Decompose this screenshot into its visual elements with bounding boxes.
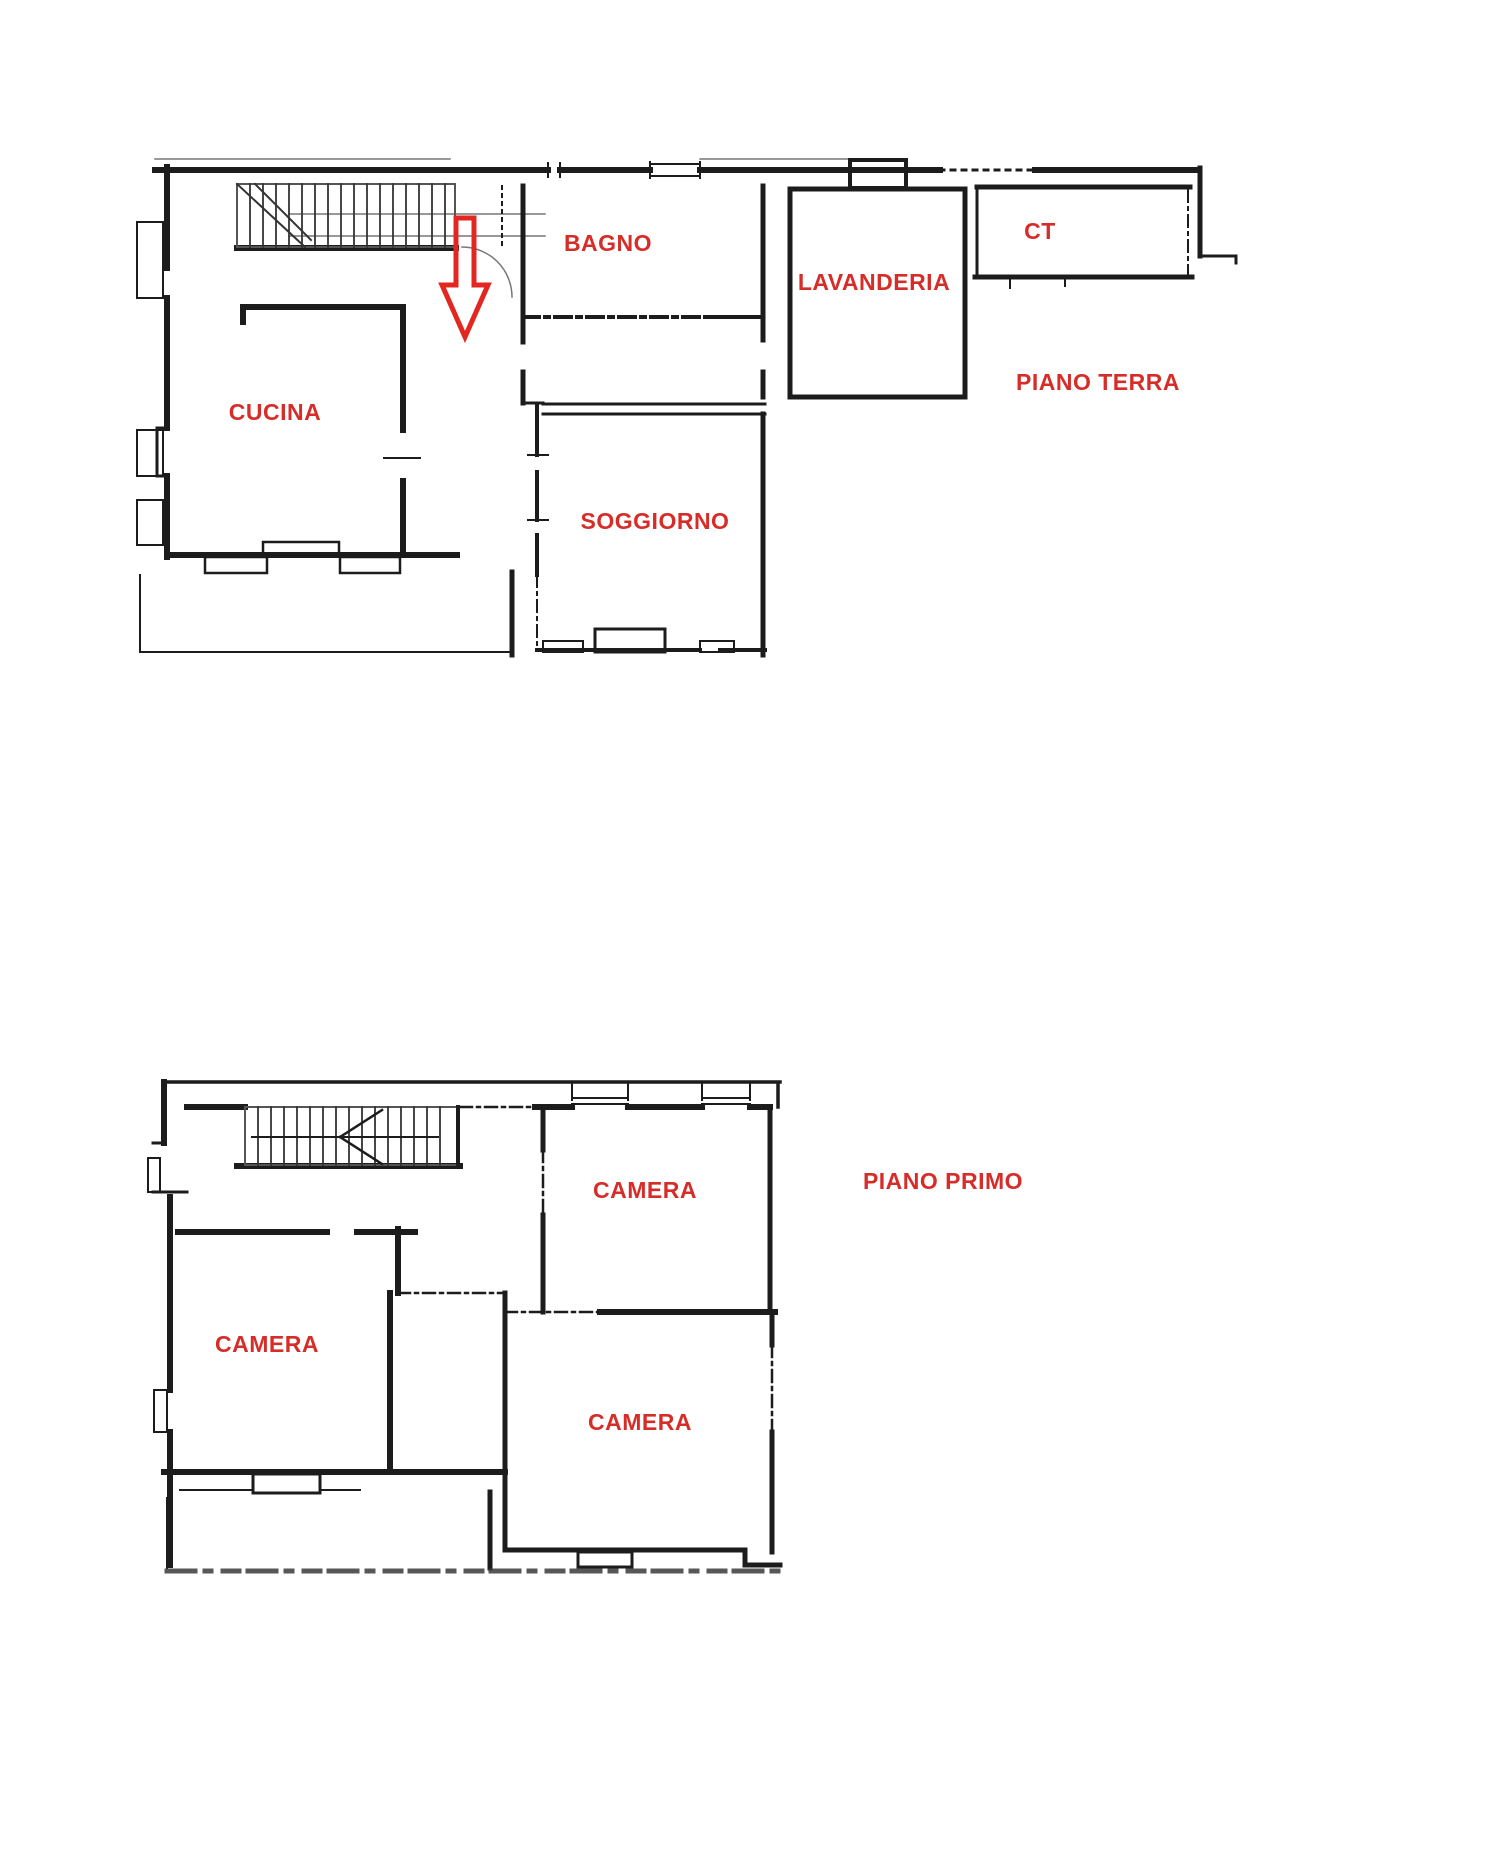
ground-floor-plan: CUCINA BAGNO LAVANDERIA CT PIANO TERRA S… — [137, 159, 1236, 655]
floor-plan-drawing: CUCINA BAGNO LAVANDERIA CT PIANO TERRA S… — [0, 0, 1500, 1862]
room-label-camera-top: CAMERA — [593, 1177, 697, 1203]
partition-walls — [537, 317, 765, 650]
ff-window-left-2 — [154, 1390, 167, 1432]
floor-plan-page: CUCINA BAGNO LAVANDERIA CT PIANO TERRA S… — [0, 0, 1500, 1862]
room-label-lavanderia: LAVANDERIA — [798, 269, 950, 295]
minor-walls — [157, 187, 1236, 476]
stairs-icon — [237, 184, 524, 247]
room-label-camera-bottom: CAMERA — [588, 1409, 692, 1435]
ff-window-left-1 — [148, 1158, 160, 1192]
ground-floor-terrace-highlight — [140, 575, 512, 652]
window-south-1 — [205, 557, 267, 573]
dashdot-walls — [537, 190, 1188, 650]
floor-title-piano-primo: PIANO PRIMO — [863, 1168, 1023, 1194]
floor-title-piano-terra: PIANO TERRA — [1016, 369, 1180, 395]
room-label-ct: CT — [1024, 218, 1056, 244]
window-left-2 — [137, 430, 163, 476]
room-label-bagno: BAGNO — [564, 230, 652, 256]
window-left-3 — [137, 500, 163, 545]
first-floor-plan: CAMERA PIANO PRIMO CAMERA CAMERA — [148, 1082, 1023, 1571]
room-label-camera-left: CAMERA — [215, 1331, 319, 1357]
room-label-cucina: CUCINA — [229, 399, 321, 425]
stairs-icon — [245, 1107, 458, 1166]
room-label-soggiorno: SOGGIORNO — [581, 508, 730, 534]
window-left-1 — [137, 222, 163, 298]
stair-break-lines — [237, 184, 311, 247]
left-wall-step — [153, 1143, 187, 1192]
first-floor-dashdot-doors — [398, 1107, 772, 1432]
chimney-box — [850, 160, 906, 188]
ff-window-south-2 — [578, 1552, 632, 1567]
first-floor-balcony-highlight — [167, 1498, 487, 1568]
window-south-2 — [340, 557, 400, 573]
stair-treads — [250, 184, 445, 247]
ff-window-south-1 — [253, 1474, 320, 1493]
outer-top-wall — [164, 1082, 780, 1107]
